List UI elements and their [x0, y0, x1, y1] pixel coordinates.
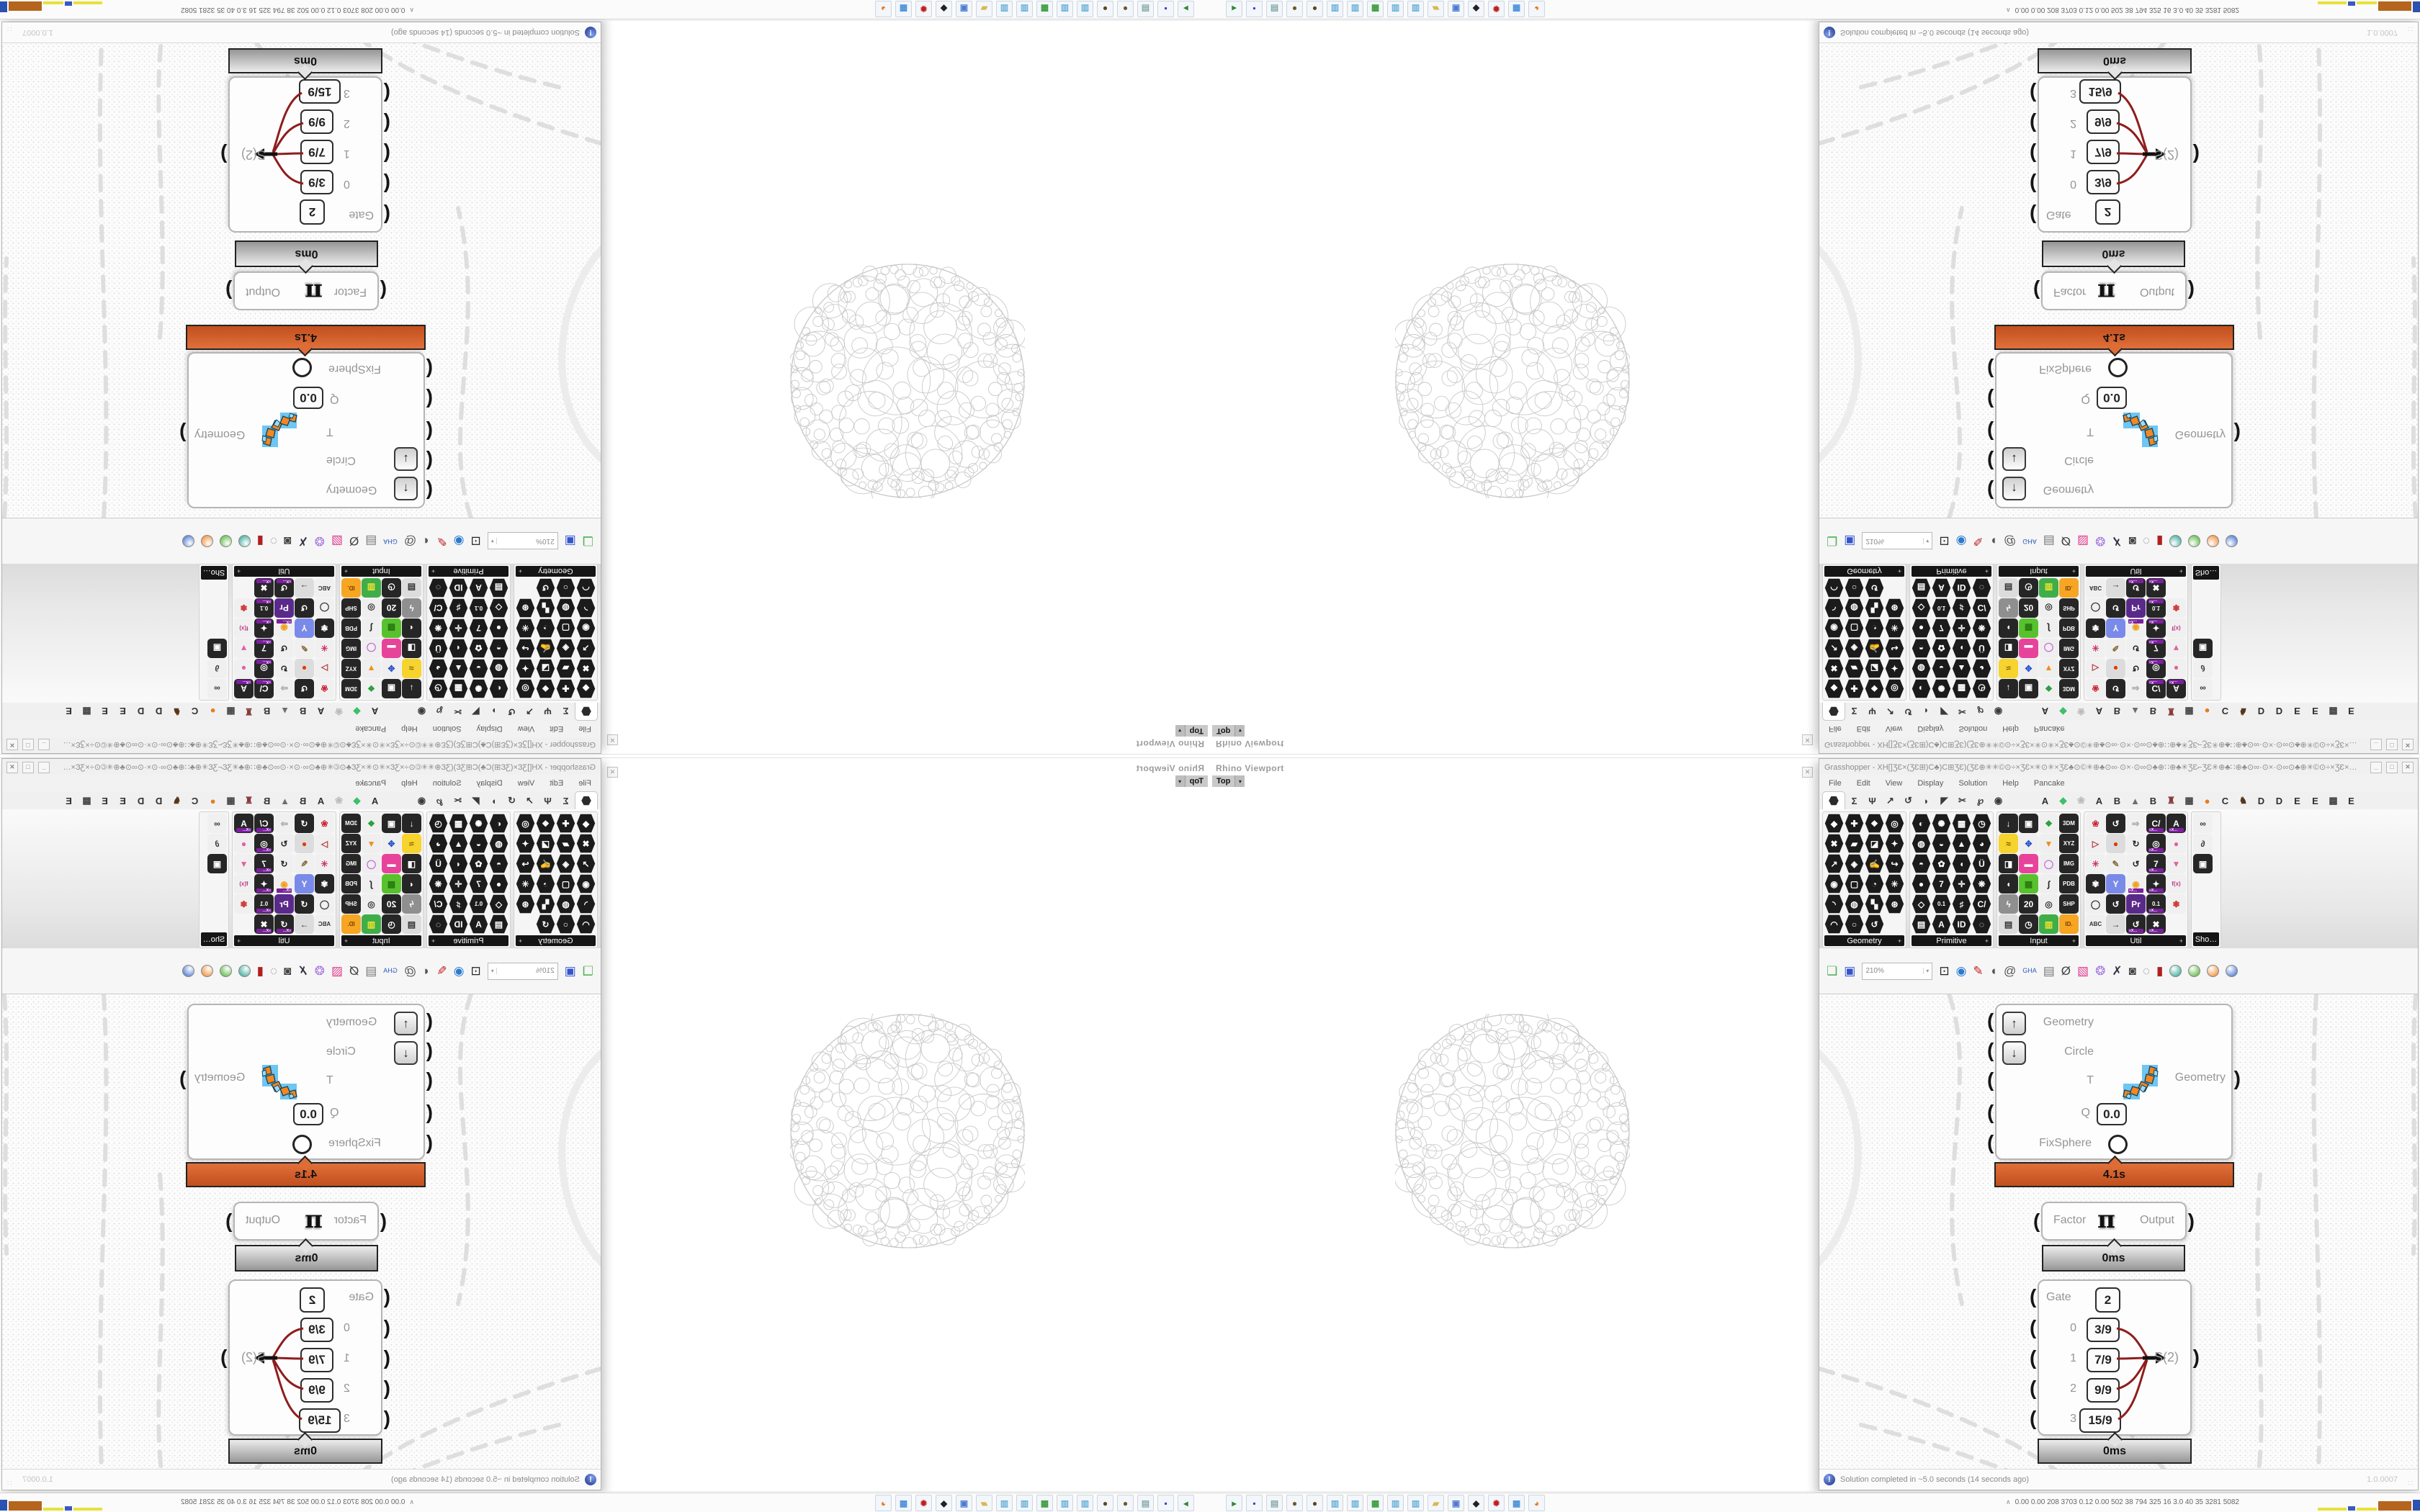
pad2-app-icon[interactable]: ▥: [1057, 1, 1073, 17]
component-icon[interactable]: A≡X…: [234, 679, 254, 698]
input-connector[interactable]: (: [384, 114, 390, 134]
component-icon[interactable]: ✦: [1885, 834, 1904, 853]
component-icon[interactable]: ▥: [362, 578, 381, 598]
component-icon[interactable]: ✦: [516, 659, 535, 678]
plugin-tab[interactable]: D: [2270, 796, 2288, 809]
input-connector[interactable]: (: [2030, 205, 2036, 225]
input-connector[interactable]: (: [1987, 390, 1994, 410]
stream-gate-component[interactable]: ( ( ( ( ( Gate 2 0 3/9 1 7/9 2 9/9 3 15/…: [228, 1279, 382, 1436]
component-icon[interactable]: ✍: [1865, 854, 1884, 873]
component-icon[interactable]: →: [2106, 578, 2125, 598]
plugin-tab[interactable]: E: [60, 703, 78, 716]
plugin-tab[interactable]: ●: [2198, 703, 2216, 716]
close-icon[interactable]: ✕: [1802, 767, 1813, 778]
viewport-tab-top[interactable]: Top ▾: [1212, 725, 1245, 737]
item-value-box[interactable]: 9/9: [300, 109, 333, 134]
component-icon[interactable]: ✿: [469, 639, 488, 658]
component-icon[interactable]: ◌: [429, 578, 448, 598]
component-icon[interactable]: ↻: [274, 659, 294, 678]
component-icon[interactable]: ∂: [2193, 834, 2213, 853]
component-icon[interactable]: ◍: [1912, 834, 1931, 853]
document-icon[interactable]: ▤: [2043, 535, 2055, 547]
ribbon-group-label[interactable]: Geometry+: [1824, 566, 1904, 577]
ribbon-group-label[interactable]: Sho…: [201, 566, 227, 580]
component-icon[interactable]: ▚: [1865, 894, 1884, 914]
menu-view[interactable]: View: [518, 725, 535, 734]
ribbon-tab-icon[interactable]: Σ: [557, 703, 575, 716]
component-icon[interactable]: ✽: [2166, 894, 2186, 914]
component-icon[interactable]: ▬: [2019, 854, 2038, 873]
search-icon[interactable]: Ø: [349, 535, 359, 547]
component-icon[interactable]: ●: [2106, 659, 2125, 678]
component-icon[interactable]: 7≡X…: [254, 639, 274, 658]
component-icon[interactable]: ✳: [2086, 639, 2105, 658]
stream-gate-component[interactable]: ( ( ( ( ( Gate 2 0 3/9 1 7/9 2 9/9 3 15/…: [228, 76, 382, 233]
component-icon[interactable]: ✚: [1845, 679, 1864, 698]
component-icon[interactable]: ID.: [2059, 578, 2079, 598]
component-icon[interactable]: ◖: [1999, 618, 2018, 638]
plugin-tab[interactable]: ♜: [2162, 703, 2180, 717]
cookie2-app-icon[interactable]: ●: [1307, 1, 1323, 17]
plugin-tab[interactable]: E: [2306, 796, 2324, 809]
component-icon[interactable]: IMG: [341, 639, 361, 658]
menu-file[interactable]: File: [1829, 725, 1842, 734]
ribbon-group-label[interactable]: Sho…: [2193, 566, 2219, 580]
component-icon[interactable]: ✚: [556, 679, 575, 698]
component-icon[interactable]: ABC: [2086, 914, 2105, 934]
component-icon[interactable]: ◆: [1824, 679, 1844, 698]
plugin-tab[interactable]: A: [312, 796, 330, 809]
tab-params[interactable]: [575, 703, 598, 721]
menu-pancake[interactable]: Pancake: [355, 725, 386, 734]
fox-app-icon[interactable]: ◕: [1528, 1495, 1545, 1511]
plugin-tab[interactable]: C: [186, 796, 204, 809]
component-icon[interactable]: C/≡X…: [254, 814, 274, 833]
gha-globe-icon[interactable]: GHA: [2022, 538, 2037, 544]
pad3-app-icon[interactable]: ▥: [1016, 1495, 1033, 1511]
plugin-tab[interactable]: ◆: [348, 795, 366, 809]
component-icon[interactable]: ◷: [382, 578, 401, 598]
save-file-icon[interactable]: ▣: [565, 965, 576, 977]
plugin-tab[interactable]: ❀: [2072, 703, 2090, 717]
component-icon[interactable]: SHP: [2059, 894, 2079, 914]
component-icon[interactable]: ♯: [1952, 598, 1971, 618]
component-icon[interactable]: XYZ: [2059, 834, 2079, 853]
component-icon[interactable]: ↺: [295, 679, 314, 698]
component-icon[interactable]: ♯: [449, 598, 468, 618]
component-icon[interactable]: C/≡X…: [2146, 679, 2166, 698]
component-icon[interactable]: ▣: [382, 679, 401, 698]
output-connector[interactable]: ): [2193, 145, 2200, 165]
output-connector[interactable]: ): [225, 281, 232, 301]
input-connector[interactable]: (: [2030, 114, 2036, 134]
component-icon[interactable]: ❋: [1972, 874, 1991, 894]
component-icon[interactable]: 0.1≡X…: [2146, 598, 2166, 618]
gate-value-box[interactable]: 2: [2095, 199, 2120, 225]
pin-icon-0[interactable]: [238, 965, 251, 977]
component-icon[interactable]: ✚: [556, 814, 575, 833]
component-icon[interactable]: ∂: [207, 659, 227, 678]
component-icon[interactable]: ✾: [315, 874, 334, 894]
component-icon[interactable]: ▦: [1952, 814, 1971, 833]
component-icon[interactable]: 20: [2019, 598, 2038, 618]
component-icon[interactable]: ◝: [576, 894, 596, 914]
plugin-tab[interactable]: A: [2090, 796, 2108, 809]
chevron-down-icon[interactable]: ▾: [1923, 538, 1929, 544]
preview-eye-icon[interactable]: ◉: [1956, 965, 1967, 977]
component-icon[interactable]: ◷: [1972, 814, 1991, 833]
viewport-tab-top[interactable]: Top ▾: [1175, 725, 1208, 737]
expand-icon[interactable]: +: [1898, 937, 1901, 945]
component-icon[interactable]: ▼: [234, 639, 254, 658]
component-icon[interactable]: ◐: [1912, 814, 1931, 833]
component-icon[interactable]: ↓: [402, 814, 421, 833]
close-icon[interactable]: ✕: [6, 739, 18, 750]
red-app-icon[interactable]: ✹: [1488, 1495, 1505, 1511]
component-icon[interactable]: ↺: [2126, 639, 2146, 658]
component-icon[interactable]: 0.1≡X…: [254, 894, 274, 914]
menu-edit[interactable]: Edit: [550, 779, 563, 788]
component-icon[interactable]: ↺≡X…: [274, 914, 294, 934]
component-icon[interactable]: ↪: [1885, 639, 1904, 658]
at-icon[interactable]: @: [2004, 965, 2016, 977]
expand-icon[interactable]: +: [1985, 568, 1989, 575]
input-connector[interactable]: (: [1987, 481, 1994, 501]
plugin-tab[interactable]: ▦: [2180, 703, 2198, 717]
close-icon[interactable]: ✕: [2402, 762, 2414, 773]
pin-icon-2[interactable]: [2207, 965, 2219, 977]
component-icon[interactable]: ↺≡X…: [2126, 578, 2146, 598]
component-icon[interactable]: ↺: [2106, 598, 2125, 618]
component-icon[interactable]: C/: [1972, 894, 1991, 914]
component-icon[interactable]: A: [1932, 914, 1951, 934]
item-value-box[interactable]: 3/9: [300, 1318, 333, 1342]
component-icon[interactable]: ◖: [449, 854, 468, 873]
input-connector[interactable]: (: [384, 144, 390, 164]
plugin-tab[interactable]: E: [2342, 703, 2360, 716]
component-icon[interactable]: Ü: [1972, 854, 1991, 873]
component-icon[interactable]: ▩: [382, 874, 401, 894]
q-value-box[interactable]: 0.0: [293, 1103, 323, 1125]
component-icon[interactable]: Pr: [2126, 894, 2146, 914]
component-icon[interactable]: ◉: [1824, 618, 1844, 638]
q-value-box[interactable]: 0.0: [2097, 387, 2127, 409]
floppy-app-icon[interactable]: ▪: [1157, 1, 1174, 17]
component-icon[interactable]: ◪: [536, 834, 555, 853]
menu-pancake[interactable]: Pancake: [355, 779, 386, 788]
component-icon[interactable]: ↺≡X…: [274, 578, 294, 598]
component-icon[interactable]: ◨: [1999, 854, 2018, 873]
component-icon[interactable]: ❀: [315, 814, 334, 833]
component-icon[interactable]: ≈: [402, 659, 421, 678]
grasshopper-title-bar[interactable]: Grasshopper - XH[]ƷƐ×(ƷƐ⊞)C♣)C⊞ƷƐ)(ƷƐ⊕✳✳…: [1819, 759, 2418, 775]
grasshopper-canvas[interactable]: ( ( ( ( ( ↑ ↓ Geometry Circle T Q FixSph…: [1819, 994, 2418, 1471]
pad2-app-icon[interactable]: ▥: [1347, 1, 1363, 17]
component-icon[interactable]: ◈: [556, 639, 575, 658]
menu-help[interactable]: Help: [2002, 725, 2019, 734]
component-icon[interactable]: →: [2106, 914, 2125, 934]
component-icon[interactable]: ◓: [1912, 854, 1931, 873]
component-icon[interactable]: ✺: [1932, 679, 1951, 698]
input-connector[interactable]: (: [2030, 1348, 2036, 1368]
terminal-app-icon[interactable]: ▸: [1178, 1495, 1194, 1511]
plugin-tab[interactable]: E: [2342, 796, 2360, 809]
component-icon[interactable]: ◇: [1912, 598, 1931, 618]
component-icon[interactable]: ◍: [556, 598, 575, 618]
component-icon[interactable]: ❋: [1972, 618, 1991, 638]
component-icon[interactable]: ✚: [1845, 814, 1864, 833]
tab-params[interactable]: [1822, 703, 1845, 721]
pin-icon-0[interactable]: [2169, 535, 2182, 547]
component-icon[interactable]: ◷: [1972, 679, 1991, 698]
component-icon[interactable]: ▰: [556, 834, 575, 853]
component-icon[interactable]: ✎: [295, 639, 314, 658]
megaphone-icon[interactable]: ◖: [1990, 965, 1997, 977]
component-icon[interactable]: ○: [1845, 578, 1864, 598]
component-icon[interactable]: ◔: [536, 874, 555, 894]
component-icon[interactable]: ◆: [576, 679, 596, 698]
component-icon[interactable]: ✍: [536, 854, 555, 873]
display-app-icon[interactable]: ▣: [956, 1, 972, 17]
component-icon[interactable]: ✥: [2019, 834, 2038, 853]
plugin-tab[interactable]: D: [150, 796, 168, 809]
component-icon[interactable]: ✳: [516, 618, 535, 638]
pin-icon-0[interactable]: [2169, 965, 2182, 977]
input-connector[interactable]: (: [426, 1040, 433, 1061]
rings-icon[interactable]: ◌: [2143, 965, 2150, 977]
component-icon[interactable]: ◍: [556, 894, 575, 914]
balloon-icon[interactable]: ❂: [2095, 965, 2105, 977]
component-icon[interactable]: ◎≡X…: [254, 834, 274, 853]
component-icon[interactable]: Pr: [274, 598, 294, 618]
art-app-icon[interactable]: ◆: [936, 1, 952, 17]
component-icon[interactable]: ○: [1845, 914, 1864, 934]
plugin-tab[interactable]: ♜: [240, 795, 258, 809]
plugin-tab[interactable]: D: [132, 703, 150, 716]
component-icon[interactable]: ✿: [1932, 854, 1951, 873]
cookie-app-icon[interactable]: ●: [1286, 1495, 1303, 1511]
q-value-box[interactable]: 0.0: [2097, 1103, 2127, 1125]
zoom-select[interactable]: 210%▾: [1862, 533, 1932, 550]
plugin-tab[interactable]: C: [186, 703, 204, 716]
component-icon[interactable]: 7: [469, 618, 488, 638]
floppy-app-icon[interactable]: ▪: [1157, 1495, 1174, 1511]
input-connector[interactable]: (: [1987, 1070, 1994, 1090]
component-icon[interactable]: ●: [489, 874, 508, 894]
expand-icon[interactable]: +: [431, 937, 435, 945]
ribbon-tab-icon[interactable]: ◉: [1989, 795, 2007, 809]
plugin-tab[interactable]: E: [114, 796, 132, 809]
component-icon[interactable]: ⇨: [2126, 814, 2146, 833]
package-icon[interactable]: ▧: [2077, 535, 2089, 547]
sketch-pen-icon[interactable]: ✎: [1973, 965, 1983, 977]
pin-icon-1[interactable]: [2188, 535, 2200, 547]
pin-icon-1[interactable]: [2188, 965, 2200, 977]
menu-edit[interactable]: Edit: [1857, 725, 1870, 734]
grasshopper-title-bar[interactable]: Grasshopper - XH[]ƷƐ×(ƷƐ⊞)C♣)C⊞ƷƐ)(ƷƐ⊕✳✳…: [1819, 737, 2418, 753]
component-icon[interactable]: ●: [2166, 834, 2186, 853]
component-icon[interactable]: ◓: [489, 639, 508, 658]
component-icon[interactable]: ◪: [1865, 834, 1884, 853]
output-connector[interactable]: ): [2234, 1068, 2241, 1089]
input-connector[interactable]: (: [380, 281, 387, 301]
plugin-tab[interactable]: ♞: [2234, 703, 2252, 717]
plugin-tab[interactable]: D: [2270, 703, 2288, 716]
component-icon[interactable]: ▬: [2019, 639, 2038, 658]
folder-app-icon[interactable]: ▰: [1428, 1, 1444, 17]
art-app-icon[interactable]: ◆: [1468, 1, 1484, 17]
resize-grip-icon[interactable]: ∷: [6, 1480, 12, 1488]
component-icon[interactable]: ◇: [489, 598, 508, 618]
input-connector[interactable]: (: [2033, 1211, 2040, 1231]
component-icon[interactable]: ⊛: [516, 598, 535, 618]
component-icon[interactable]: ✾: [2086, 874, 2105, 894]
component-icon[interactable]: 7≡X…: [2146, 639, 2166, 658]
plugin-tab[interactable]: B: [2108, 703, 2126, 716]
component-icon[interactable]: ●: [2106, 834, 2125, 853]
pad-app-icon[interactable]: ▥: [1077, 1, 1093, 17]
ribbon-tab-icon[interactable]: ↺: [503, 703, 521, 717]
component-icon[interactable]: ◍: [1845, 894, 1864, 914]
component-icon[interactable]: ◨: [402, 639, 421, 658]
gha-globe-icon[interactable]: GHA: [383, 538, 398, 544]
component-icon[interactable]: ID.: [341, 578, 361, 598]
expand-icon[interactable]: +: [344, 568, 348, 575]
component-icon[interactable]: ϟ: [402, 598, 421, 618]
pi-factor-component[interactable]: ( Factor π Output ): [2041, 1202, 2187, 1241]
pad3-app-icon[interactable]: ▥: [1016, 1, 1033, 17]
plugin-tab[interactable]: A: [312, 703, 330, 716]
component-icon[interactable]: 3DM: [2059, 679, 2079, 698]
camera-icon[interactable]: ◙: [284, 535, 291, 547]
component-icon[interactable]: 0.1≡X…: [2146, 894, 2166, 914]
pin-icon-0[interactable]: [238, 535, 251, 547]
ribbon-tab-icon[interactable]: Σ: [1845, 796, 1863, 809]
component-icon[interactable]: ◒: [469, 659, 488, 678]
ribbon-tab-icon[interactable]: ◉: [1989, 703, 2007, 717]
barrel-icon[interactable]: ▮: [2156, 535, 2163, 547]
component-icon[interactable]: ∞: [207, 814, 227, 833]
component-icon[interactable]: ▷: [2086, 834, 2105, 853]
component-icon[interactable]: ↺: [2106, 679, 2125, 698]
component-icon[interactable]: ✾: [2086, 618, 2105, 638]
component-icon[interactable]: ABC: [2086, 578, 2105, 598]
plugin-tab[interactable]: ♜: [2162, 795, 2180, 809]
component-icon[interactable]: ▤: [1999, 578, 2018, 598]
plugin-tab[interactable]: ♞: [168, 703, 186, 717]
component-icon[interactable]: ▩: [2019, 874, 2038, 894]
art-app-icon[interactable]: ◆: [1468, 1495, 1484, 1511]
ribbon-group-label[interactable]: Input+: [1999, 566, 2079, 577]
component-icon[interactable]: ◍: [489, 659, 508, 678]
ribbon-group-label[interactable]: Input+: [341, 566, 421, 577]
pad3-app-icon[interactable]: ▥: [1387, 1495, 1404, 1511]
component-icon[interactable]: ◖: [1952, 639, 1971, 658]
plugin-tab[interactable]: E: [2288, 796, 2306, 809]
component-icon[interactable]: ID: [1952, 578, 1971, 598]
zoom-select[interactable]: 210%▾: [488, 963, 558, 980]
ribbon-tab-icon[interactable]: ↺: [503, 795, 521, 809]
input-connector[interactable]: (: [2033, 281, 2040, 301]
component-icon[interactable]: ◎: [1885, 814, 1904, 833]
component-icon[interactable]: ◷: [382, 914, 401, 934]
q-value-box[interactable]: 0.0: [293, 387, 323, 409]
barrel-icon[interactable]: ▮: [257, 965, 264, 977]
preview-eye-icon[interactable]: ◉: [454, 965, 465, 977]
floppy-app-icon[interactable]: ▪: [1246, 1495, 1263, 1511]
component-icon[interactable]: ↺≡X…: [2126, 914, 2146, 934]
component-icon[interactable]: ◓: [489, 854, 508, 873]
search-icon[interactable]: Ø: [349, 965, 359, 977]
component-icon[interactable]: ▣: [2193, 854, 2213, 873]
component-icon[interactable]: ≈: [1999, 659, 2018, 678]
input-connector[interactable]: (: [384, 174, 390, 194]
component-icon[interactable]: ●: [295, 659, 314, 678]
zoom-select[interactable]: 210%▾: [1862, 963, 1932, 980]
component-icon[interactable]: 7: [469, 874, 488, 894]
ribbon-tab-icon[interactable]: ◗: [485, 796, 503, 809]
output-connector[interactable]: ): [220, 1347, 227, 1367]
component-icon[interactable]: ◎: [516, 814, 535, 833]
tab-params[interactable]: [1822, 791, 1845, 809]
open-file-icon[interactable]: ❏: [1827, 965, 1837, 977]
plugin-tab[interactable]: B: [2144, 703, 2162, 716]
component-icon[interactable]: ◇: [489, 894, 508, 914]
plugin-tab[interactable]: ◆: [348, 703, 366, 717]
plugin-tab[interactable]: A: [2036, 796, 2054, 809]
gate-value-box[interactable]: 2: [2095, 1287, 2120, 1313]
component-icon[interactable]: ↺: [536, 914, 555, 934]
component-icon[interactable]: ∞: [207, 679, 227, 698]
component-icon[interactable]: ↺: [536, 578, 555, 598]
wires-icon[interactable]: ✗: [297, 965, 308, 977]
component-icon[interactable]: ♯: [1952, 894, 1971, 914]
ribbon-tab-icon[interactable]: ◗: [1917, 703, 1935, 716]
component-icon[interactable]: XYZ: [341, 834, 361, 853]
menu-view[interactable]: View: [518, 779, 535, 788]
component-icon[interactable]: 7≡X…: [2146, 854, 2166, 873]
component-icon[interactable]: ◠: [576, 578, 596, 598]
minimize-icon[interactable]: _: [38, 739, 50, 750]
expand-icon[interactable]: +: [1898, 568, 1901, 575]
minimize-icon[interactable]: _: [38, 762, 50, 773]
component-icon[interactable]: ❀: [315, 679, 334, 698]
component-icon[interactable]: ✳: [2086, 854, 2105, 873]
ribbon-group-label[interactable]: Primitive+: [1912, 566, 1991, 577]
component-icon[interactable]: ◎≡X…: [2146, 834, 2166, 853]
component-icon[interactable]: C/: [1972, 598, 1991, 618]
input-connector[interactable]: (: [384, 1348, 390, 1368]
input-connector[interactable]: (: [1987, 451, 1994, 472]
cookie-app-icon[interactable]: ●: [1117, 1, 1134, 17]
component-icon[interactable]: ✺: [469, 814, 488, 833]
component-icon[interactable]: ◪: [1865, 659, 1884, 678]
component-icon[interactable]: 20: [382, 894, 401, 914]
preview-eye-icon[interactable]: ◉: [454, 535, 465, 547]
ribbon-tab-icon[interactable]: ↗: [1881, 703, 1899, 717]
component-icon[interactable]: XYZ: [2059, 659, 2079, 678]
component-icon[interactable]: A≡X…: [234, 814, 254, 833]
plugin-tab[interactable]: D: [132, 796, 150, 809]
wires-icon[interactable]: ✗: [2112, 535, 2122, 547]
component-icon[interactable]: ▢: [556, 618, 575, 638]
calc-app-icon[interactable]: ▦: [1508, 1, 1525, 17]
plugin-tab[interactable]: A: [366, 796, 384, 809]
input-connector[interactable]: (: [1987, 1011, 1994, 1031]
ribbon-group-label[interactable]: Util+: [234, 935, 334, 946]
component-icon[interactable]: ▣: [2019, 679, 2038, 698]
pin-icon-3[interactable]: [182, 535, 194, 547]
